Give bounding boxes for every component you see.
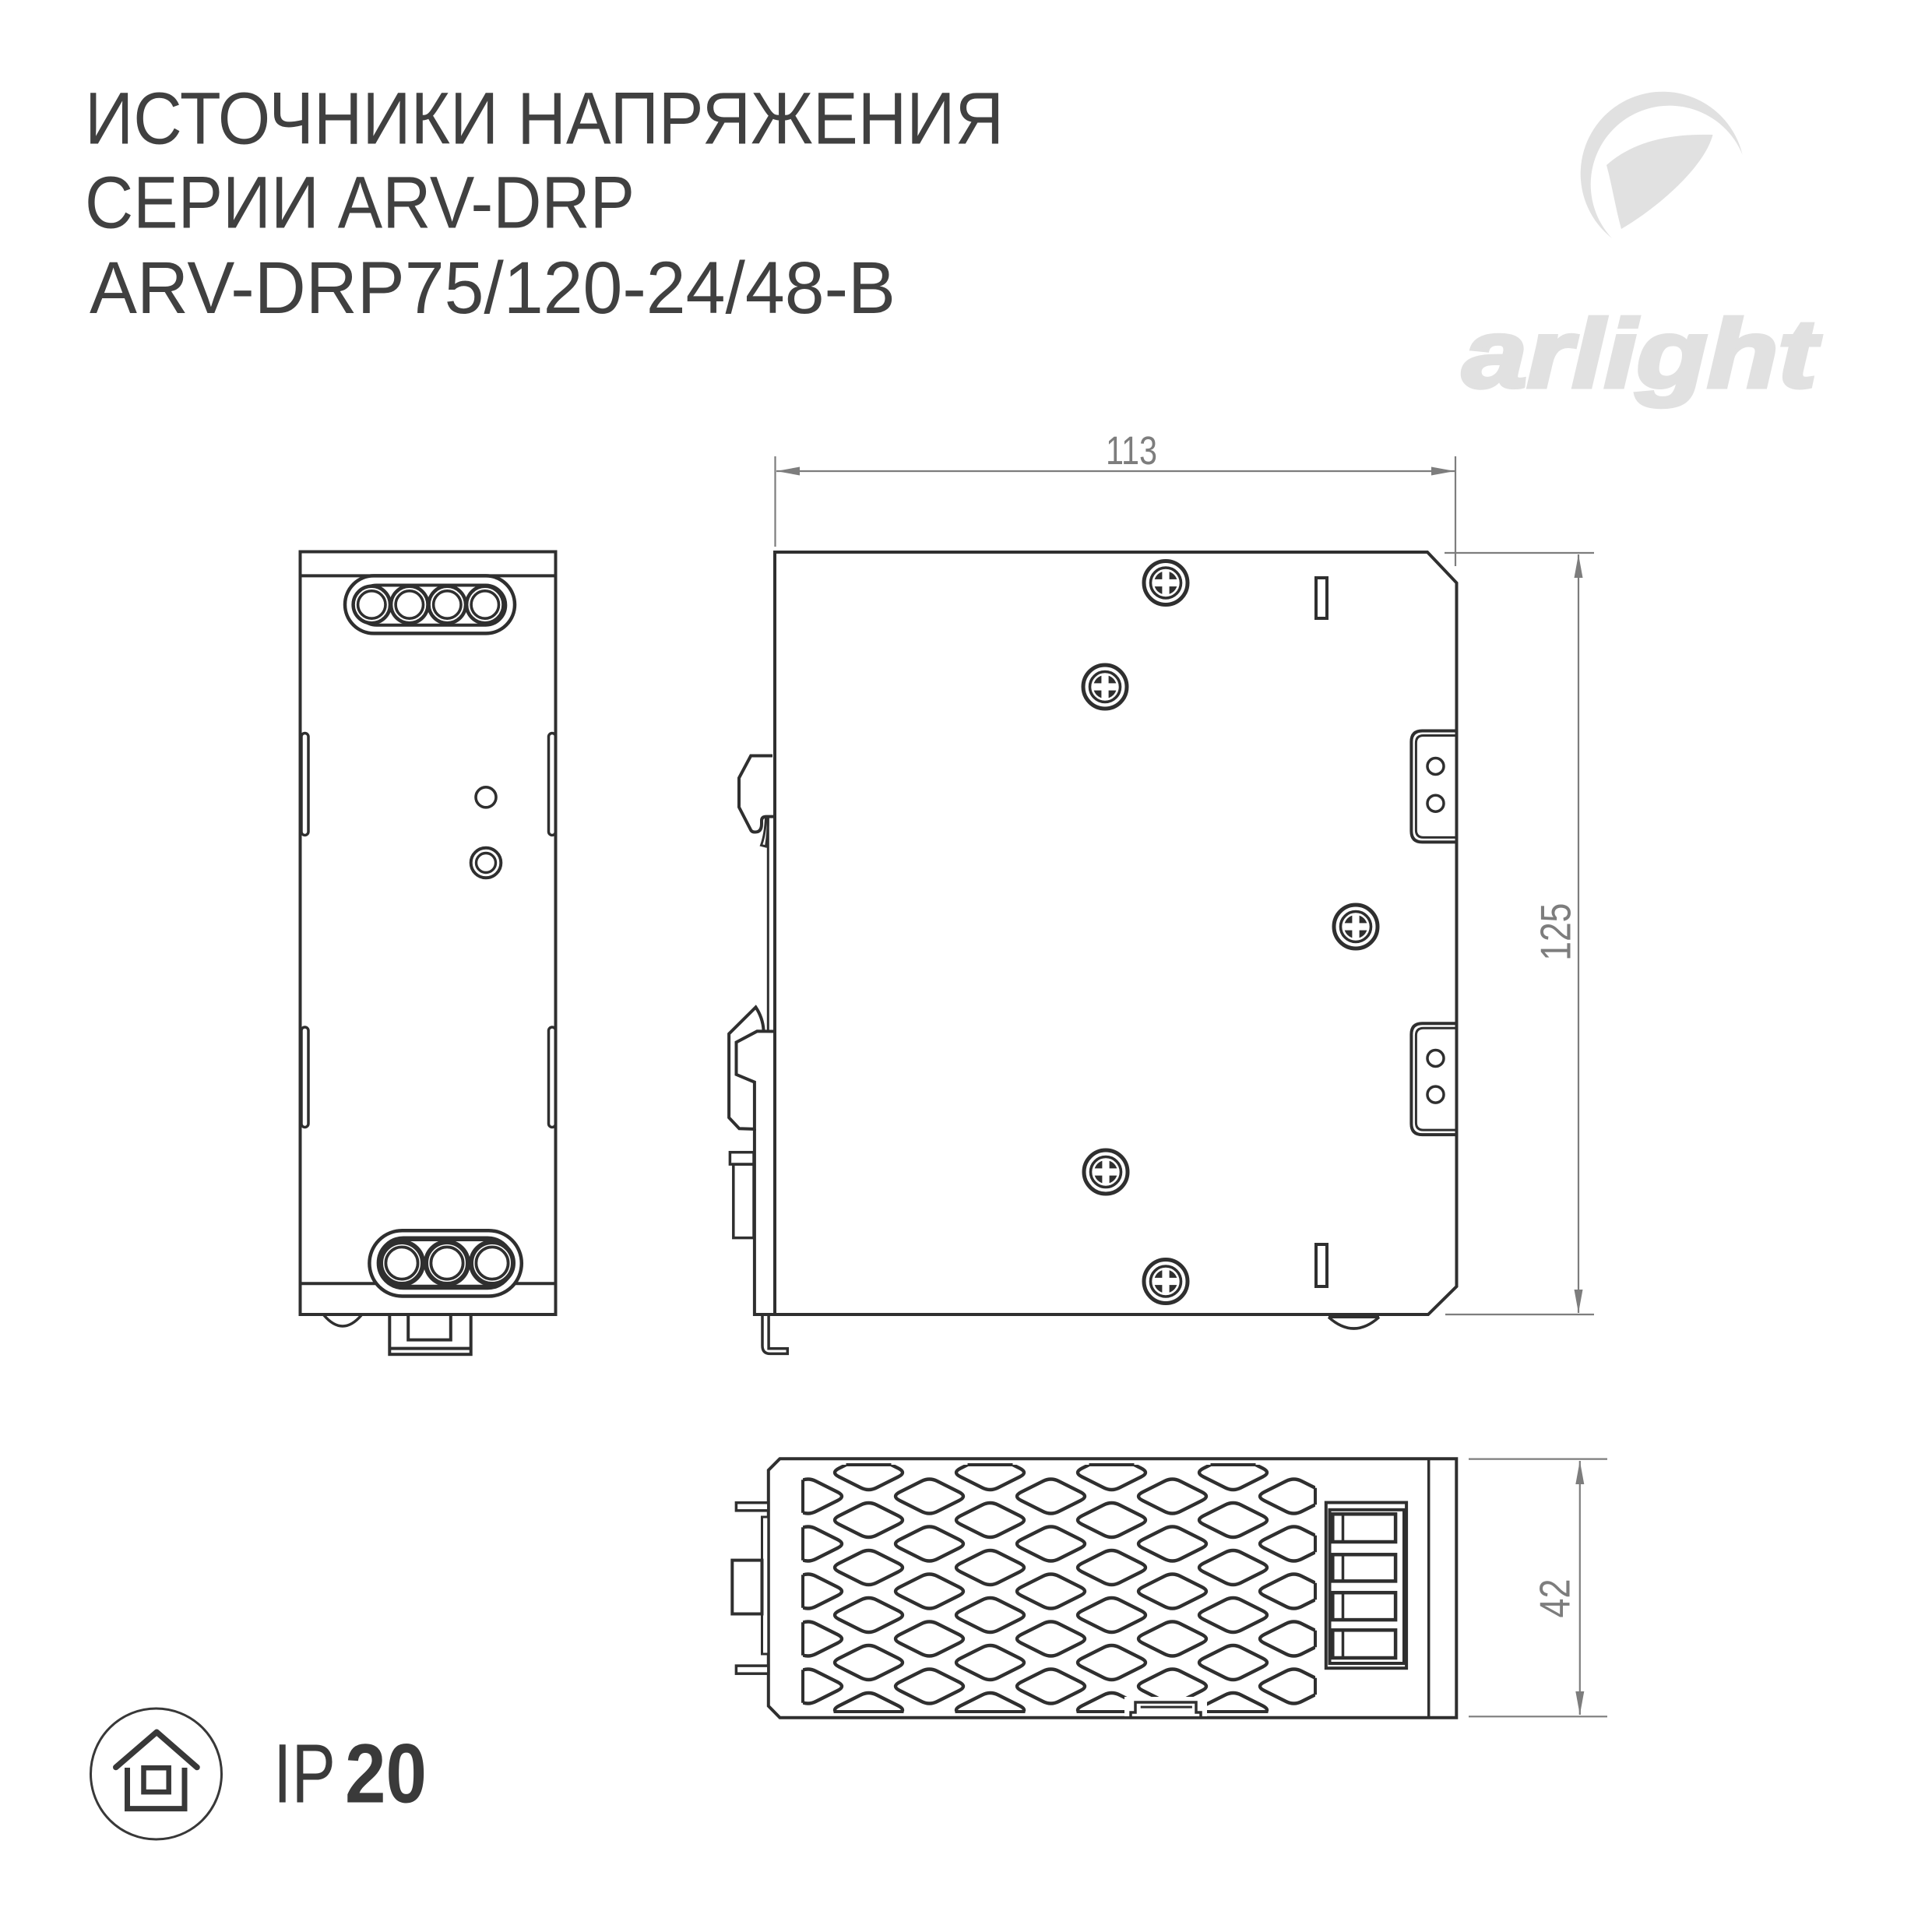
svg-text:20: 20 [345, 1726, 427, 1820]
svg-text:СЕРИИ ARV-DRP: СЕРИИ ARV-DRP [85, 161, 635, 244]
svg-text:ARV-DRP75/120-24/48-B: ARV-DRP75/120-24/48-B [90, 247, 896, 329]
svg-text:125: 125 [1532, 903, 1580, 961]
svg-text:arlight: arlight [1462, 301, 1821, 408]
svg-text:IP: IP [273, 1726, 336, 1820]
svg-text:ИСТОЧНИКИ НАПРЯЖЕНИЯ: ИСТОЧНИКИ НАПРЯЖЕНИЯ [85, 78, 1004, 160]
svg-text:113: 113 [1106, 428, 1157, 473]
svg-text:42: 42 [1531, 1579, 1579, 1618]
